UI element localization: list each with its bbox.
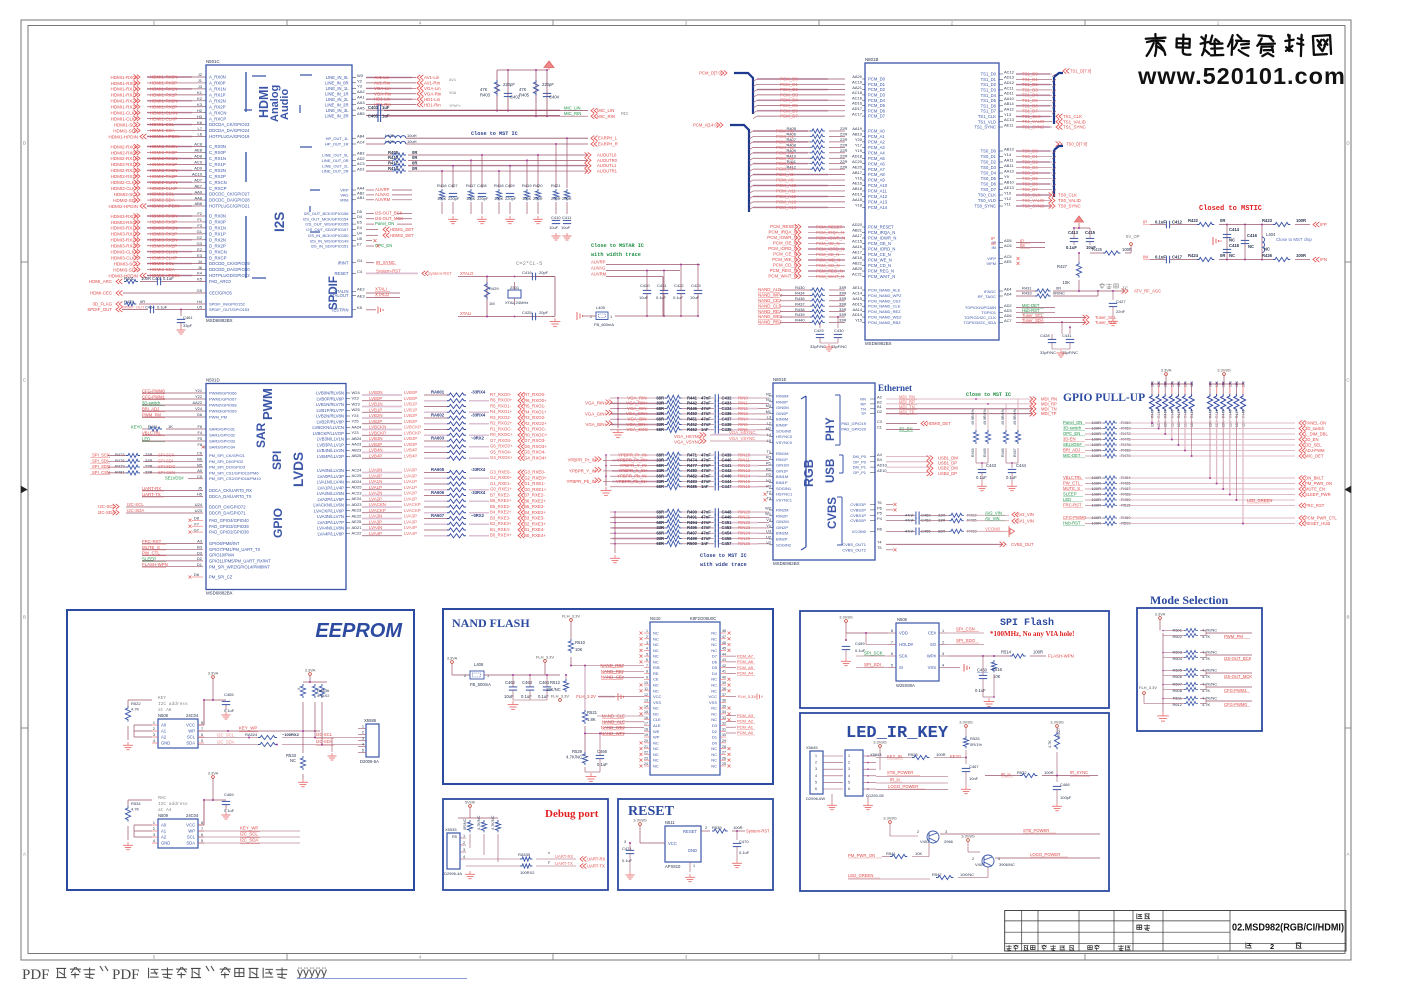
svg-text:HDMI1-RX0N: HDMI1-RX0N xyxy=(150,75,178,80)
svg-text:0.1uF: 0.1uF xyxy=(163,276,174,281)
svg-text:100R: 100R xyxy=(1091,503,1101,508)
svg-text:AA3: AA3 xyxy=(357,100,365,105)
svg-text:RIN26: RIN26 xyxy=(738,541,751,546)
svg-text:RIN4: RIN4 xyxy=(738,417,748,422)
svg-text:4: 4 xyxy=(942,664,944,668)
svg-text:35: 35 xyxy=(722,704,726,708)
svg-text:Y25: Y25 xyxy=(352,419,360,424)
svg-text:A_RX2N: A_RX2N xyxy=(209,98,226,103)
svg-text:C_RX2P: C_RX2P xyxy=(209,174,226,179)
svg-text:RA535: RA535 xyxy=(518,852,531,857)
svg-text:VGA_GIN+: VGA_GIN+ xyxy=(626,411,649,416)
svg-text:R534: R534 xyxy=(131,801,141,806)
svg-text:TS0_SYNC: TS0_SYNC xyxy=(1058,204,1081,209)
svg-text:HDMI1-CLKP: HDMI1-CLKP xyxy=(150,116,177,121)
svg-text:100pF: 100pF xyxy=(1060,795,1072,800)
svg-text:KEY0: KEY0 xyxy=(131,425,142,430)
svg-text:RESET_HUB: RESET_HUB xyxy=(1305,521,1330,526)
svg-text:47nF: 47nF xyxy=(701,395,711,400)
svg-text:RIN2P: RIN2P xyxy=(776,513,788,518)
svg-text:6: 6 xyxy=(646,658,648,662)
svg-text:AB13: AB13 xyxy=(1004,146,1015,151)
svg-text:68R: 68R xyxy=(656,417,664,422)
svg-text:HDMI1-RX2N: HDMI1-RX2N xyxy=(150,98,178,103)
svg-text:AA19: AA19 xyxy=(852,126,863,131)
svg-text:7: 7 xyxy=(201,727,203,731)
svg-text:220pF: 220pF xyxy=(477,196,489,201)
svg-text:RIN0P: RIN0P xyxy=(776,399,788,404)
svg-text:R491: R491 xyxy=(687,515,698,520)
svg-text:C419: C419 xyxy=(522,270,532,275)
svg-text:2: 2 xyxy=(1270,942,1274,951)
svg-text:G4_RXO4+: G4_RXO4+ xyxy=(524,455,547,460)
svg-text:100R: 100R xyxy=(1091,497,1101,502)
svg-text:R0_RXOC+: R0_RXOC+ xyxy=(524,432,548,437)
svg-text:R436: R436 xyxy=(795,296,805,301)
svg-text:X5844: X5844 xyxy=(870,752,882,757)
svg-text:0.1uF: 0.1uF xyxy=(622,858,633,863)
svg-text:G4: G4 xyxy=(357,258,363,263)
svg-text:B7_RXE2-: B7_RXE2- xyxy=(524,493,545,498)
svg-text:R452: R452 xyxy=(687,422,698,427)
svg-text:AC16: AC16 xyxy=(852,95,863,100)
svg-text:OPC_EN: OPC_EN xyxy=(1063,431,1080,436)
svg-text:R440: R440 xyxy=(795,318,805,323)
svg-text:10K: 10K xyxy=(1177,420,1181,427)
svg-text:10K: 10K xyxy=(1184,380,1188,387)
svg-text:3.3VA: 3.3VA xyxy=(447,656,458,661)
svg-text:TS0_D2: TS0_D2 xyxy=(981,160,997,165)
svg-text:22: 22 xyxy=(644,751,648,755)
svg-text:GIN2P: GIN2P xyxy=(776,525,788,530)
svg-text:6: 6 xyxy=(815,787,817,791)
svg-text:V24: V24 xyxy=(195,406,203,411)
svg-text:HDMI1-CLKN: HDMI1-CLKN xyxy=(150,110,178,115)
svg-text:RIN23: RIN23 xyxy=(738,525,751,530)
svg-text:GND: GND xyxy=(688,848,697,853)
svg-text:30: 30 xyxy=(722,733,726,737)
svg-text:100R: 100R xyxy=(1091,486,1101,491)
svg-text:ADJ-PWM: ADJ-PWM xyxy=(1305,448,1325,453)
svg-text:I2C-SDA: I2C-SDA xyxy=(98,510,115,515)
svg-text:N801E: N801E xyxy=(773,377,786,382)
svg-text:IFP: IFP xyxy=(1320,222,1327,227)
svg-text:LVA1P: LVA1P xyxy=(404,479,417,484)
svg-text:DM_P1: DM_P1 xyxy=(853,465,867,470)
svg-text:AD8: AD8 xyxy=(194,154,203,159)
svg-text:AD13: AD13 xyxy=(1004,75,1015,80)
svg-text:10K: 10K xyxy=(1157,380,1161,387)
svg-text:HOLD#: HOLD# xyxy=(899,642,914,647)
svg-text:18: 18 xyxy=(644,727,648,731)
svg-text:RIN10: RIN10 xyxy=(738,452,751,457)
svg-text:C460: C460 xyxy=(977,668,988,673)
svg-text:HDMI1-RX1N: HDMI1-RX1N xyxy=(150,87,178,92)
svg-text:RGB: RGB xyxy=(802,459,816,487)
svg-text:TS1_D6: TS1_D6 xyxy=(981,103,997,108)
svg-text:Y16: Y16 xyxy=(855,175,863,180)
svg-text:AD2: AD2 xyxy=(357,156,365,161)
svg-text:AA12: AA12 xyxy=(1004,107,1015,112)
svg-text:FLH_3.2V: FLH_3.2V xyxy=(576,694,596,699)
svg-text:68R: 68R xyxy=(656,509,664,514)
svg-text:VCOM0: VCOM0 xyxy=(985,527,1001,532)
svg-text:47nF: 47nF xyxy=(701,515,711,520)
svg-text:EEPROM: EEPROM xyxy=(315,620,403,642)
svg-text:PCM_A[14:0]: PCM_A[14:0] xyxy=(693,123,718,128)
svg-text:8: 8 xyxy=(201,821,203,825)
svg-text:NC: NC xyxy=(653,642,659,647)
svg-text:LVA0P: LVA0P xyxy=(404,468,417,473)
svg-text:PCM_A0: PCM_A0 xyxy=(737,730,754,735)
svg-text:AC21: AC21 xyxy=(852,272,863,277)
svg-text:Tuner_SDA: Tuner_SDA xyxy=(1095,320,1117,325)
svg-text:L406: L406 xyxy=(474,662,484,667)
svg-text:LVA2P: LVA2P xyxy=(369,496,382,501)
svg-text:AA23: AA23 xyxy=(352,442,363,447)
svg-text:PCM_REG_N: PCM_REG_N xyxy=(868,269,894,274)
svg-text:R482: R482 xyxy=(687,474,698,479)
svg-text:B7_RXE2-: B7_RXE2- xyxy=(490,492,511,497)
svg-text:33R: 33R xyxy=(839,285,846,290)
svg-text:TS1_D2: TS1_D2 xyxy=(981,82,997,87)
svg-text:1: 1 xyxy=(487,674,489,678)
svg-text:XTALOUT: XTALOUT xyxy=(329,293,348,298)
svg-text:R472: R472 xyxy=(1121,431,1131,436)
svg-text:TS0_VALID: TS0_VALID xyxy=(1058,198,1081,203)
svg-text:H2: H2 xyxy=(197,108,203,113)
svg-text:R425: R425 xyxy=(1092,247,1103,252)
svg-text:U4: U4 xyxy=(357,231,363,236)
svg-text:10uF: 10uF xyxy=(549,225,559,230)
svg-text:N506: N506 xyxy=(897,617,908,622)
svg-text:SPI_SCK: SPI_SCK xyxy=(92,453,110,458)
svg-text:47nF: 47nF xyxy=(701,452,711,457)
svg-text:YPBPR_Pb_IN-: YPBPR_Pb_IN- xyxy=(617,474,649,479)
svg-text:L405: L405 xyxy=(596,305,606,310)
svg-text:0R: 0R xyxy=(412,155,417,160)
svg-text:HDMI2-RX0N: HDMI2-RX0N xyxy=(150,144,178,149)
svg-text:VGA-Lin: VGA-Lin xyxy=(374,86,391,91)
svg-text:LVBCKP/LLVOP: LVBCKP/LLVOP xyxy=(313,431,344,436)
svg-text:PCM_WE_N: PCM_WE_N xyxy=(868,258,892,263)
svg-text:A3: A3 xyxy=(197,539,203,544)
svg-text:TS0_CLK: TS0_CLK xyxy=(978,193,996,198)
svg-text:K3: K3 xyxy=(197,102,203,107)
svg-text:SAR1/GPIO32: SAR1/GPIO32 xyxy=(209,433,236,438)
svg-text:R0_RXOC+: R0_RXOC+ xyxy=(490,432,513,437)
svg-text:C6: C6 xyxy=(197,451,202,456)
svg-text:W24: W24 xyxy=(352,390,361,395)
svg-text:AB21: AB21 xyxy=(852,228,863,233)
svg-text:K5: K5 xyxy=(197,277,203,282)
svg-text:PM_SPI_CZ: PM_SPI_CZ xyxy=(209,575,233,580)
svg-text:BIN2M: BIN2M xyxy=(776,531,788,536)
svg-text:B6_RXE2+: B6_RXE2+ xyxy=(490,498,512,503)
svg-text:46: 46 xyxy=(722,641,726,645)
svg-text:AE13: AE13 xyxy=(1004,185,1015,190)
svg-text:22R: 22R xyxy=(840,153,847,158)
svg-text:PM_SPI_CS2/GPIO16/PM10: PM_SPI_CS2/GPIO16/PM10 xyxy=(209,476,262,481)
svg-text:HDMI1_DET: HDMI1_DET xyxy=(390,227,414,232)
svg-text:LVB1P: LVB1P xyxy=(404,402,417,407)
svg-text:SPDIF_IN/GPIO152: SPDIF_IN/GPIO152 xyxy=(209,302,246,307)
svg-text:y: y xyxy=(548,860,550,864)
svg-text:R446: R446 xyxy=(687,406,698,411)
svg-text:B5_RXE2-: B5_RXE2- xyxy=(524,504,545,509)
svg-text:GIN2M: GIN2M xyxy=(776,519,789,524)
svg-text:LVA0P: LVA0P xyxy=(369,473,382,478)
svg-text:AB14: AB14 xyxy=(1004,101,1015,106)
svg-text:DDCA_CK/UART0_RX: DDCA_CK/UART0_RX xyxy=(209,488,252,493)
svg-text:PANEL-ON: PANEL-ON xyxy=(1305,421,1326,426)
svg-text:LVA0P: LVA0P xyxy=(404,473,417,478)
svg-text:B4: B4 xyxy=(877,457,883,462)
svg-text:TS1_D4: TS1_D4 xyxy=(1022,93,1038,98)
svg-text:RIN3: RIN3 xyxy=(738,411,748,416)
svg-text:AB19: AB19 xyxy=(852,132,863,137)
svg-text:47nF: 47nF xyxy=(701,463,711,468)
svg-text:AE7: AE7 xyxy=(194,183,202,188)
svg-text:Y23: Y23 xyxy=(352,430,360,435)
svg-text:B: B xyxy=(23,615,26,620)
svg-text:1: 1 xyxy=(693,864,695,868)
svg-text:A_RX2P: A_RX2P xyxy=(209,104,226,109)
svg-text:R426: R426 xyxy=(1262,253,1273,258)
svg-text:220pF: 220pF xyxy=(448,196,460,201)
svg-text:HP_OUT_1R: HP_OUT_1R xyxy=(325,142,349,147)
svg-text:5V_OP: 5V_OP xyxy=(1126,234,1140,239)
svg-text:R492: R492 xyxy=(967,512,977,517)
svg-text:0R/NC: 0R/NC xyxy=(463,818,467,830)
svg-text:C437: C437 xyxy=(722,417,733,422)
svg-text:MSD6I882BX: MSD6I882BX xyxy=(206,318,233,323)
svg-text:TS1_CLK: TS1_CLK xyxy=(1063,114,1082,119)
svg-text:NAND_REz: NAND_REz xyxy=(758,309,781,314)
svg-text:TS1_CLK: TS1_CLK xyxy=(978,114,996,119)
svg-text:4: 4 xyxy=(153,739,155,743)
svg-text:C439: C439 xyxy=(722,452,733,457)
svg-text:C430: C430 xyxy=(834,328,844,333)
svg-text:R405: R405 xyxy=(519,93,530,98)
svg-text:NC: NC xyxy=(711,711,717,716)
svg-text:A0: A0 xyxy=(161,823,167,828)
svg-text:TS0_SYNC: TS0_SYNC xyxy=(1022,204,1044,209)
svg-text:B1_RXE4-: B1_RXE4- xyxy=(490,527,511,532)
svg-text:B2_RXE3+: B2_RXE3+ xyxy=(524,521,546,526)
svg-text:TS0_D6: TS0_D6 xyxy=(981,182,997,187)
svg-text:U5: U5 xyxy=(197,305,202,310)
svg-text:CVBS_OUT1: CVBS_OUT1 xyxy=(842,542,867,547)
svg-text:I2C_SCL: I2C_SCL xyxy=(240,832,258,837)
svg-text:H4: H4 xyxy=(197,299,203,304)
svg-text:AC25: AC25 xyxy=(352,473,363,478)
svg-text:33R: 33R xyxy=(656,479,664,484)
svg-text:R5_RXO1-: R5_RXO1- xyxy=(524,404,546,409)
svg-text:Audio: Audio xyxy=(279,89,291,120)
svg-text:Panel_ON: Panel_ON xyxy=(375,221,394,226)
svg-text:AV_VIN: AV_VIN xyxy=(985,516,1000,521)
svg-text:VCC: VCC xyxy=(186,823,195,828)
svg-text:GIN0P: GIN0P xyxy=(776,411,788,416)
svg-text:R450: R450 xyxy=(687,411,698,416)
svg-text:PCM_REG_N: PCM_REG_N xyxy=(770,268,797,273)
svg-text:220pF: 220pF xyxy=(503,82,515,87)
svg-text:NAND_WEz: NAND_WEz xyxy=(758,314,782,319)
svg-text:R479: R479 xyxy=(115,464,125,469)
svg-text:D_RX1P: D_RX1P xyxy=(209,231,226,236)
svg-text:AC22: AC22 xyxy=(352,531,363,536)
svg-text:RE: RE xyxy=(653,671,659,676)
svg-text:PCM_A1: PCM_A1 xyxy=(868,134,885,139)
svg-text:LVA4P: LVA4P xyxy=(404,531,417,536)
svg-text:LVACKP/LLV6P: LVACKP/LLV6P xyxy=(314,508,344,513)
svg-text:4: 4 xyxy=(362,742,364,746)
svg-text:System-RST: System-RST xyxy=(428,271,452,276)
svg-text:TS0_D6: TS0_D6 xyxy=(1022,182,1038,187)
svg-text:LOGO_POWER: LOGO_POWER xyxy=(888,784,918,789)
svg-text:LVB4P/LLV2P: LVB4P/LLV2P xyxy=(317,454,344,459)
svg-text:4: 4 xyxy=(815,774,817,778)
svg-text:47nF: 47nF xyxy=(701,406,711,411)
svg-text:F1: F1 xyxy=(197,217,202,222)
svg-text:68R: 68R xyxy=(656,531,664,536)
svg-text:W25: W25 xyxy=(352,407,361,412)
svg-text:LVB2P/RLV8P: LVB2P/RLV8P xyxy=(316,419,344,424)
svg-text:C_RX1P: C_RX1P xyxy=(209,162,226,167)
svg-text:10K: 10K xyxy=(1063,280,1071,285)
svg-text:D8: D8 xyxy=(194,516,200,521)
svg-text:RIN16: RIN16 xyxy=(738,484,751,489)
svg-text:100R: 100R xyxy=(1091,515,1101,520)
svg-text:IR_SYNC: IR_SYNC xyxy=(376,260,395,265)
svg-text:47nF: 47nF xyxy=(701,422,711,427)
svg-text:RA603: RA603 xyxy=(431,436,445,441)
svg-text:24C04: 24C04 xyxy=(186,813,199,818)
svg-text:HSYNC0: HSYNC0 xyxy=(776,434,793,439)
svg-text:IR_in: IR_in xyxy=(1001,772,1011,777)
svg-text:10K: 10K xyxy=(1215,380,1219,387)
svg-text:SCK: SCK xyxy=(899,654,908,659)
svg-text:PCM_WAIT_N: PCM_WAIT_N xyxy=(868,274,895,279)
svg-text:LVDS: LVDS xyxy=(291,452,306,487)
svg-text:RIN0M: RIN0M xyxy=(776,394,788,399)
svg-text:7: 7 xyxy=(891,641,893,645)
svg-text:AA13: AA13 xyxy=(1004,168,1015,173)
svg-text:NC: NC xyxy=(653,740,659,745)
svg-text:44: 44 xyxy=(722,652,726,656)
svg-text:LVA4N/LLV8N: LVA4N/LLV8N xyxy=(317,526,344,531)
svg-text:49.9R/1%: 49.9R/1% xyxy=(983,408,987,425)
svg-text:ON_BKLT: ON_BKLT xyxy=(1305,476,1324,481)
svg-text:LVA3N/LLV7N: LVA3N/LLV7N xyxy=(317,514,344,519)
svg-text:HDMI2-CLKP: HDMI2-CLKP xyxy=(150,186,177,191)
svg-text:D3: D3 xyxy=(197,550,203,555)
svg-text:VGA-Lin: VGA-Lin xyxy=(424,86,441,91)
svg-text:C444: C444 xyxy=(1016,463,1027,468)
svg-text:MIC_DET: MIC_DET xyxy=(1305,454,1324,459)
svg-text:KEY_IN: KEY_IN xyxy=(887,754,902,759)
svg-text:Close to MST IC: Close to MST IC xyxy=(966,392,1011,398)
svg-text:VGA_SOG: VGA_SOG xyxy=(627,427,649,432)
svg-text:LVB0P: LVB0P xyxy=(404,390,417,395)
svg-text:C469: C469 xyxy=(224,792,234,797)
svg-text:Close to MST IC: Close to MST IC xyxy=(700,553,747,559)
svg-text:TS1_D5: TS1_D5 xyxy=(981,98,997,103)
svg-text:D7: D7 xyxy=(712,654,718,659)
svg-text:LVA1P: LVA1P xyxy=(369,485,382,490)
svg-text:LVB0P: LVB0P xyxy=(404,396,417,401)
svg-text:Y20: Y20 xyxy=(855,137,863,142)
svg-text:CEC/GPIO5: CEC/GPIO5 xyxy=(209,291,232,296)
svg-text:AC18: AC18 xyxy=(852,90,863,95)
svg-text:Debug port: Debug port xyxy=(545,808,599,820)
svg-text:R6: R6 xyxy=(877,527,882,532)
svg-text:10K: 10K xyxy=(575,647,583,652)
svg-text:AA8: AA8 xyxy=(194,195,202,200)
svg-text:VGA-Rin: VGA-Rin xyxy=(424,91,442,96)
svg-text:2: 2 xyxy=(153,827,155,831)
svg-text:10uF: 10uF xyxy=(504,694,514,699)
svg-text:-33RX4: -33RX4 xyxy=(471,467,486,472)
svg-text:RA524: RA524 xyxy=(245,732,258,737)
svg-text:TS0_D1: TS0_D1 xyxy=(981,154,997,159)
svg-text:4.7K/NC: 4.7K/NC xyxy=(1202,628,1217,633)
svg-text:AC9: AC9 xyxy=(194,160,203,165)
svg-text:UART-TX: UART-TX xyxy=(587,864,605,869)
svg-text:Mode Selection: Mode Selection xyxy=(1150,593,1229,607)
svg-text:R607: R607 xyxy=(1172,682,1182,687)
svg-text:SCL: SCL xyxy=(187,735,196,740)
svg-text:1K: 1K xyxy=(168,424,173,429)
svg-text:C447: C447 xyxy=(722,484,733,489)
svg-text:2: 2 xyxy=(464,674,466,678)
svg-text:R475: R475 xyxy=(1121,437,1131,442)
svg-text:HDMI3-RX2P: HDMI3-RX2P xyxy=(150,243,177,248)
svg-text:PCM_IRQA_N: PCM_IRQA_N xyxy=(868,230,895,235)
svg-text:HDMI3-RX1P: HDMI3-RX1P xyxy=(150,231,177,236)
svg-text:ÿÿÿÿÿ: ÿÿÿÿÿ xyxy=(297,965,327,979)
svg-text:PCM_D4: PCM_D4 xyxy=(780,98,798,103)
svg-text:U5: U5 xyxy=(357,236,362,241)
svg-text:33pF/NC: 33pF/NC xyxy=(810,344,826,349)
svg-text:AUOUTR0: AUOUTR0 xyxy=(597,158,618,163)
svg-text:22R: 22R xyxy=(145,470,152,475)
svg-text:RIN13: RIN13 xyxy=(738,468,751,473)
svg-text:M3: M3 xyxy=(766,403,771,408)
svg-text:VGA_BIN-: VGA_BIN- xyxy=(628,417,649,422)
svg-text:1: 1 xyxy=(153,821,155,825)
svg-text:R488: R488 xyxy=(1121,448,1131,453)
svg-text:K8: K8 xyxy=(357,305,363,310)
svg-text:www.520101.com: www.520101.com xyxy=(1137,63,1346,89)
svg-text:D4: D4 xyxy=(712,671,718,676)
svg-text:V3: V3 xyxy=(766,517,771,522)
svg-text:Y3: Y3 xyxy=(357,84,363,89)
svg-text:AE23: AE23 xyxy=(352,508,363,513)
svg-text:AB11: AB11 xyxy=(1004,163,1014,168)
svg-text:PHY: PHY xyxy=(825,417,837,441)
svg-text:XTALO: XTALO xyxy=(375,292,390,297)
svg-text:2: 2 xyxy=(942,641,944,645)
svg-text:SPI-CSN: SPI-CSN xyxy=(158,470,175,475)
svg-text:4.7kX2: 4.7kX2 xyxy=(317,693,330,698)
svg-text:HDMI2-RX1N: HDMI2-RX1N xyxy=(150,156,178,161)
svg-text:W3: W3 xyxy=(357,73,364,78)
svg-text:SCL: SCL xyxy=(187,835,196,840)
svg-text:RIN22: RIN22 xyxy=(738,520,751,525)
svg-text:LVB2P: LVB2P xyxy=(369,419,382,424)
